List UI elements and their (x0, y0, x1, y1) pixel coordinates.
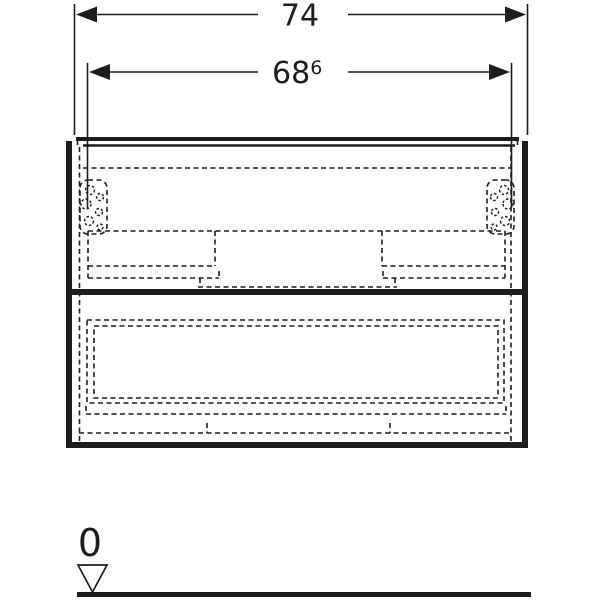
dim-686-main: 68 (272, 56, 310, 91)
dim-74-value: 74 (281, 0, 319, 34)
drawer-slide-clip-right (487, 180, 514, 234)
slide-detail-circle (492, 209, 499, 216)
ground-level-triangle-icon (78, 565, 107, 592)
drawer-divider (66, 289, 528, 295)
dim-74-arrowhead-left-icon (76, 7, 97, 23)
dim-686-superscript: 6 (310, 57, 322, 79)
datum-ground-level: 0 (77, 521, 531, 597)
drawing-canvas: 74 686 (0, 0, 600, 600)
slide-detail-circle (501, 217, 510, 226)
cabinet-technical-drawing: 74 686 (0, 0, 600, 600)
dimension-carcass-width: 686 (88, 56, 512, 208)
slide-detail-circle (491, 224, 497, 230)
dim-686-value: 686 (272, 56, 322, 91)
dim-686-arrowhead-left-icon (89, 64, 110, 80)
ground-line (77, 592, 531, 597)
lower-drawer-outer-dashed (87, 320, 504, 403)
datum-zero-label: 0 (78, 521, 102, 565)
slide-detail-circle (85, 217, 94, 226)
slide-detail-circle (81, 199, 91, 209)
cabinet-body (66, 139, 528, 448)
slide-detail-circle (491, 194, 498, 201)
slide-detail-circle (97, 224, 103, 230)
cabinet-bottom-edge (66, 442, 528, 448)
slide-detail-circle (97, 194, 104, 201)
dim-74-arrowhead-right-icon (505, 7, 526, 23)
slide-detail-circle (500, 186, 509, 195)
lower-drawer-inner-dashed (94, 326, 498, 398)
dim-686-arrowhead-right-icon (489, 64, 510, 80)
drawer-slide-clip-left (80, 180, 107, 234)
slide-detail-circle (96, 209, 103, 216)
lower-drawer-hidden-detail (79, 320, 512, 433)
